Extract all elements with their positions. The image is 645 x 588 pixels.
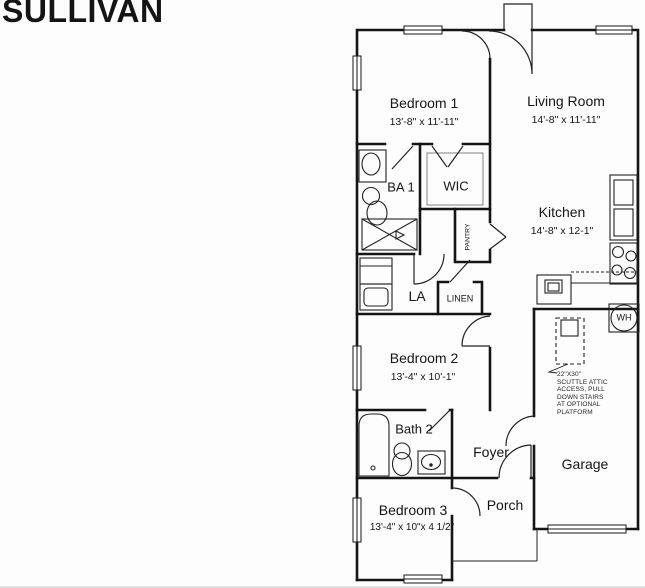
bedroom2-label: Bedroom 2 (390, 351, 458, 365)
living-top-window (596, 26, 632, 34)
living-room-label: Living Room (527, 94, 605, 108)
kitchen-counter (537, 272, 637, 304)
laundry-label: LA (408, 289, 425, 303)
laundry-dryer (360, 284, 392, 310)
kitchen-label: Kitchen (539, 205, 586, 219)
ba1-sink (359, 150, 386, 182)
attic-note-line: ACCESS, PULL (557, 386, 608, 394)
bath2-tub (359, 414, 389, 476)
attic-note-line: 22"X30" (557, 371, 608, 379)
bedroom3-door-arc (452, 488, 480, 516)
water-heater-label: WH (617, 314, 632, 323)
bedroom1-dims: 13'-8" x 11'-11" (390, 117, 459, 128)
garage-entry-door-arc (506, 416, 534, 446)
pantry-label: PANTRY (466, 224, 473, 251)
garage-door (548, 525, 626, 533)
linen-label: LINEN (447, 295, 474, 304)
attic-note-line: PLATFORM (557, 409, 608, 417)
kitchen-dims: 14'-8" x 12-1" (531, 226, 594, 237)
attic-access-note: 22"X30" SCUTTLE ATTIC ACCESS, PULL DOWN … (557, 371, 608, 416)
wic-door-leaves (432, 146, 463, 167)
rear-door-arc (489, 31, 532, 74)
bedroom1-label: Bedroom 1 (390, 96, 458, 110)
floorplan-page: SULLIVAN (0, 0, 645, 588)
bedroom3-bottom-window (404, 575, 442, 583)
kitchen-range (610, 243, 637, 284)
bedroom3-left-window (353, 498, 361, 542)
attic-note-line: AT OPTIONAL (557, 401, 608, 409)
ba1-shower (362, 219, 417, 250)
bath2-label: Bath 2 (395, 423, 433, 436)
garage-label: Garage (562, 457, 609, 471)
porch-label: Porch (487, 498, 524, 512)
laundry-washer (360, 258, 392, 284)
ba1-door-leaf (392, 146, 413, 169)
attic-note-line: DOWN STAIRS (557, 394, 608, 402)
doors (392, 4, 534, 516)
living-room-dims: 14'-8" x 11'-11" (532, 115, 601, 126)
floorplan-drawing (0, 0, 645, 586)
kitchen-fridge (610, 175, 637, 240)
bedroom3-label: Bedroom 3 (379, 503, 447, 517)
pantry-door-leaves (490, 224, 506, 249)
bedroom2-dims: 13'-4" x 10'-1" (391, 372, 456, 383)
bedroom1-door-arc (462, 31, 490, 59)
ba1-label: BA 1 (387, 181, 414, 194)
bedroom1-left-window (353, 56, 361, 90)
wic-label: WIC (443, 180, 468, 193)
bath2-toilet (393, 443, 412, 476)
porch-outline (452, 529, 537, 561)
attic-access (549, 318, 584, 373)
foyer-label: Foyer (473, 445, 509, 459)
attic-note-line: SCUTTLE ATTIC (557, 379, 608, 387)
bedroom2-left-window (353, 346, 361, 390)
bedroom2-door-arc (462, 316, 490, 346)
bedroom1-top-window (404, 26, 442, 34)
bath2-sink (418, 451, 445, 474)
bedroom3-dims: 13'-4" x 10"x 4 1/2" (370, 523, 454, 533)
laundry-door-arc (414, 254, 444, 284)
rear-door-alcove (504, 4, 532, 29)
